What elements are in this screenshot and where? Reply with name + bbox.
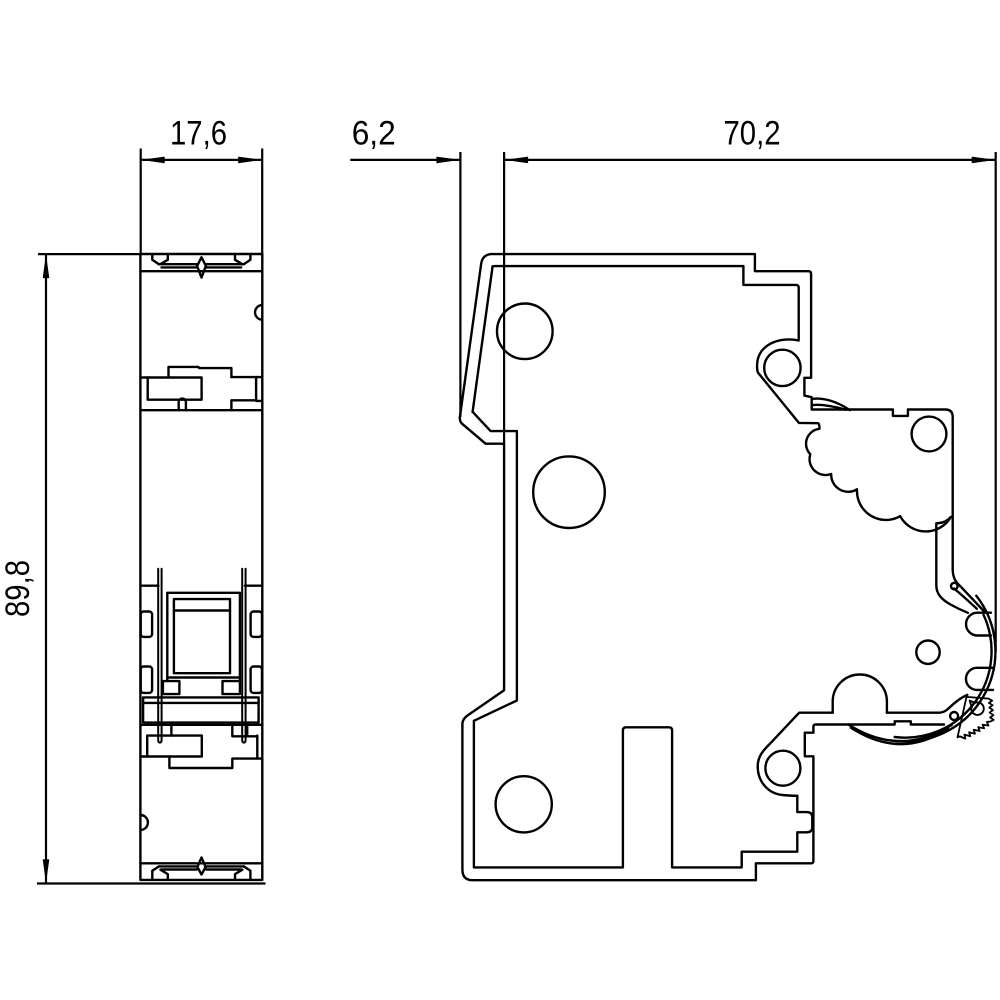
svg-text:6,2: 6,2 bbox=[352, 115, 396, 153]
svg-text:70,2: 70,2 bbox=[724, 115, 781, 153]
svg-text:17,6: 17,6 bbox=[170, 115, 227, 153]
svg-text:89,8: 89,8 bbox=[0, 560, 37, 617]
